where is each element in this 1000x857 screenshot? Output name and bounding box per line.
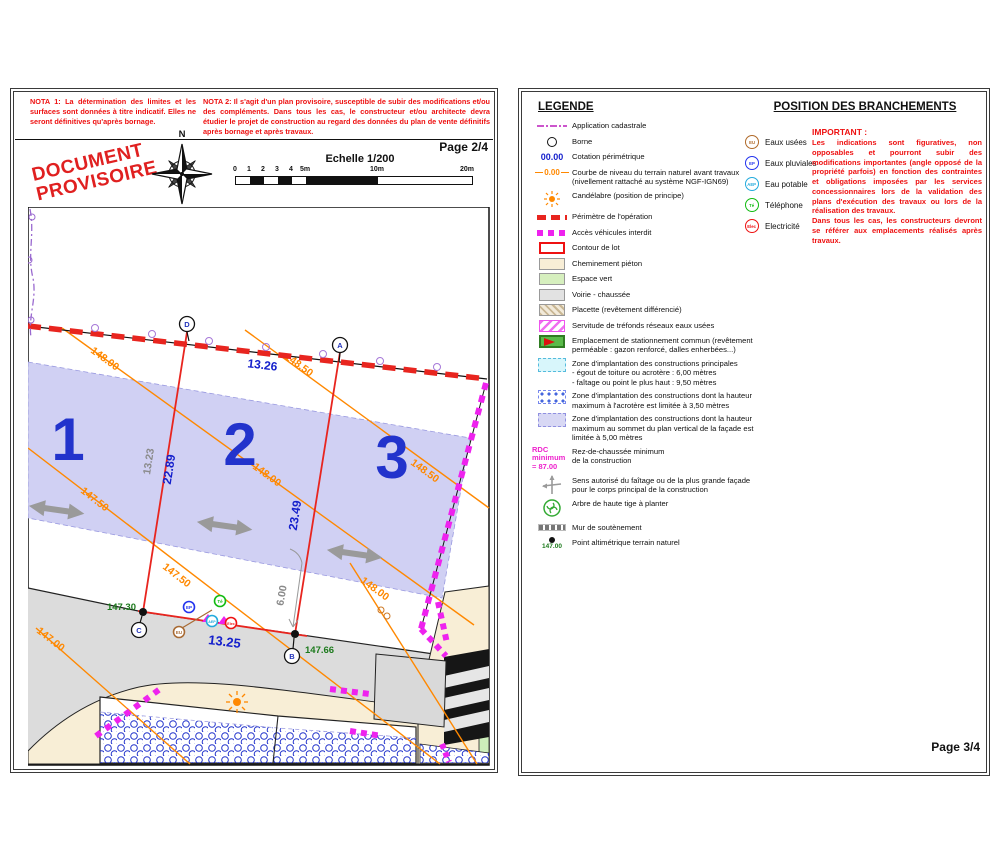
spot-level-b: 147.66: [305, 645, 334, 656]
legend-item: Contour de lot: [532, 242, 776, 254]
left-page-number: Page 2/4: [400, 140, 488, 154]
street-lamp-legend-icon: [543, 190, 561, 208]
crosswalk: [444, 649, 489, 745]
legend-item: Espace vert: [532, 273, 776, 285]
legend-list: Application cadastrale Borne 00.00 Cotat…: [532, 120, 776, 554]
main-zone-swatch: [538, 358, 566, 372]
legend-item: Accès véhicules interdit: [532, 227, 776, 239]
tel-icon: Té: [217, 599, 223, 604]
legend-item: Mur de soutènement: [532, 522, 776, 534]
legend-item: Zone d'implantation des constructions pr…: [532, 358, 776, 387]
point-letter-c: C: [136, 626, 142, 635]
site-plan-drawing: 148.50 148.50 148.00 148.00 148.00 147.5…: [28, 207, 490, 766]
eau-potable-icon: AEP: [745, 177, 759, 191]
nota2-text: NOTA 2: Il s'agit d'un plan provisoire, …: [203, 97, 490, 136]
rdc-minimum-swatch: RDC minimum = 87.00: [532, 446, 572, 472]
telephone-icon: Té: [745, 198, 759, 212]
tree-icon: [542, 498, 562, 518]
legend-item: 147.00 Point altimétrique terrain nature…: [532, 537, 776, 550]
point-letter-b: B: [289, 652, 295, 661]
compass-rose: N: [150, 126, 214, 210]
cadastral-line-swatch: [537, 125, 567, 127]
road-patch: [374, 654, 446, 727]
zone-5m-swatch: [538, 413, 566, 427]
espace-vert-swatch: [539, 273, 565, 285]
borne-icon: [547, 137, 557, 147]
branchements-title: POSITION DES BRANCHEMENTS: [755, 101, 975, 113]
legend-item: Sens autorisé du faîtage ou de la plus g…: [532, 475, 776, 495]
placette-swatch: [539, 304, 565, 316]
scale-tick: 20m: [460, 166, 474, 173]
servitude-swatch: [539, 320, 565, 332]
legend-item: 0.00 Courbe de niveau du terrain naturel…: [532, 167, 776, 187]
legend-item: Servitude de tréfonds réseaux eaux usées: [532, 320, 776, 332]
eu-icon: EU: [176, 630, 182, 635]
point-letter-a: A: [337, 341, 343, 350]
electricite-icon: Elec: [745, 219, 759, 233]
legend-item: Borne: [532, 136, 776, 148]
legend-item: Placette (revêtement différencié): [532, 304, 776, 316]
scale-tick: 10m: [370, 166, 384, 173]
legend-item: Voirie - chaussée: [532, 289, 776, 301]
document-canvas: NOTA 1: La détermination des limites et …: [0, 0, 1000, 857]
lot-number-1: 1: [51, 406, 84, 473]
cheminement-swatch: [539, 258, 565, 270]
legend-item: RDC minimum = 87.00 Rez-de-chaussée mini…: [532, 446, 776, 472]
ridge-direction-legend-icon: [542, 475, 562, 495]
legend-item: Cheminement piéton: [532, 258, 776, 270]
lot-number-2: 2: [223, 411, 256, 478]
eaux-pluviales-icon: EP: [745, 156, 759, 170]
zone-35m-swatch: [538, 390, 566, 404]
spot-level-c: 147.30: [107, 602, 136, 613]
no-access-swatch: [537, 230, 567, 236]
scale-tick: 2: [261, 166, 265, 173]
ep-icon: EP: [186, 605, 192, 610]
scale-tick: 4: [289, 166, 293, 173]
important-title: IMPORTANT :: [812, 127, 982, 137]
eaux-usees-icon: EU: [745, 135, 759, 149]
scale-title: Echelle 1/200: [290, 153, 430, 165]
legend-item: 00.00 Cotation périmétrique: [532, 151, 776, 163]
voirie-swatch: [539, 289, 565, 301]
important-body: Les indications sont figuratives, non op…: [812, 138, 982, 245]
legend-item: Arbre de haute tige à planter: [532, 498, 776, 518]
lot-number-3: 3: [375, 424, 408, 491]
perimeter-swatch: [537, 215, 567, 220]
retaining-wall-swatch: [538, 524, 566, 531]
nota1-text: NOTA 1: La détermination des limites et …: [30, 97, 196, 127]
scale-tick: 5m: [300, 166, 310, 173]
street-lamp-icon: [226, 691, 248, 713]
cotation-swatch: 00.00: [532, 151, 572, 163]
contour-swatch: 0.00: [535, 168, 569, 177]
legend-item: Candélabre (position de principe): [532, 190, 776, 208]
legend-item: Emplacement de stationnement commun (rev…: [532, 335, 776, 355]
elec-icon: Elec: [227, 622, 234, 626]
legend-item: Périmètre de l'opération: [532, 211, 776, 223]
scale-bar: 0 1 2 3 4 5m 10m 20m: [233, 166, 473, 188]
legend-title: LEGENDE: [538, 101, 594, 113]
legend-item: Zone d'implantation des constructions do…: [532, 413, 776, 442]
aep-icon: AEP: [208, 620, 216, 624]
scale-tick: 0: [233, 166, 237, 173]
scale-tick: 1: [247, 166, 251, 173]
legend-item: Zone d'implantation des constructions do…: [532, 390, 776, 410]
parking-swatch: [539, 335, 565, 348]
scale-bar-rule: [235, 176, 473, 185]
scale-tick: 3: [275, 166, 279, 173]
spot-level-swatch: 147.00: [542, 537, 562, 550]
right-page-number: Page 3/4: [900, 740, 980, 754]
lot-outline-swatch: [539, 242, 565, 254]
important-notice: IMPORTANT : Les indications sont figurat…: [812, 127, 982, 245]
legend-item: Application cadastrale: [532, 120, 776, 132]
point-letter-d: D: [184, 320, 190, 329]
compass-north-label: N: [179, 129, 186, 140]
